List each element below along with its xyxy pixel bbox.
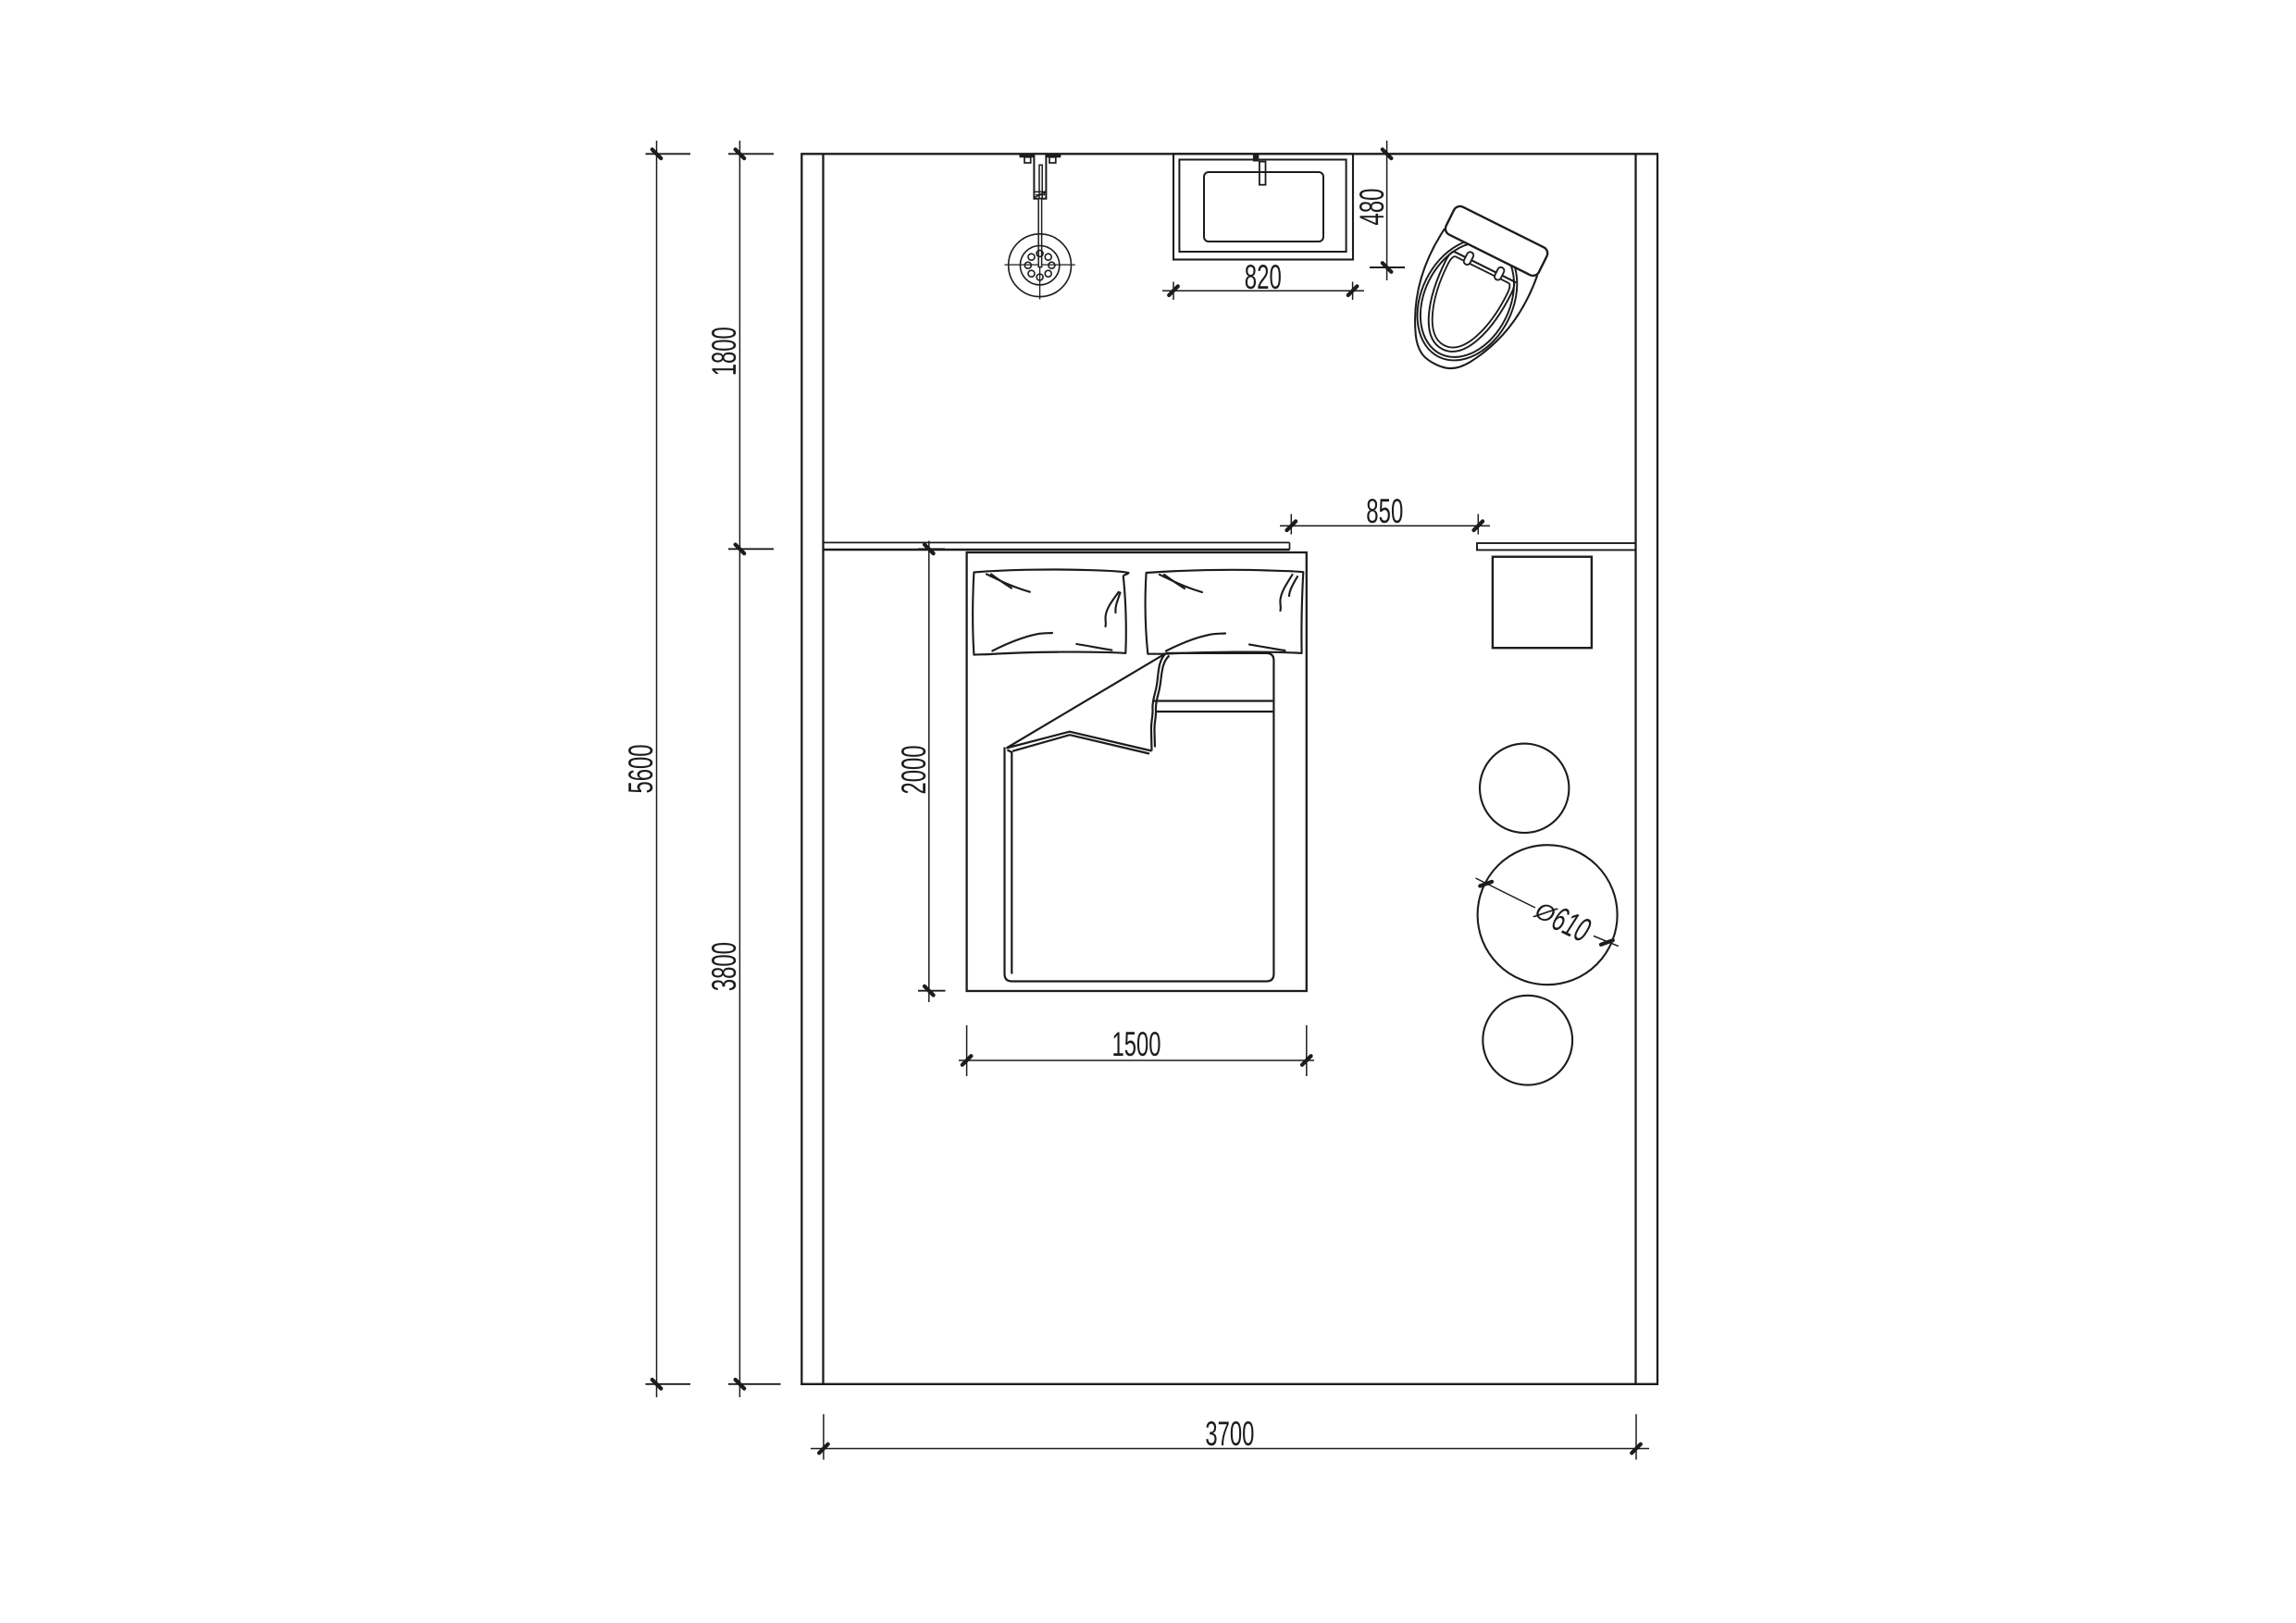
svg-text:820: 820: [1245, 258, 1282, 296]
svg-text:3800: 3800: [705, 942, 743, 991]
svg-text:1500: 1500: [1112, 1025, 1161, 1063]
svg-text:480: 480: [1353, 189, 1391, 226]
svg-text:3700: 3700: [1205, 1415, 1254, 1453]
svg-text:850: 850: [1366, 492, 1403, 530]
svg-text:5600: 5600: [622, 745, 660, 794]
svg-text:2000: 2000: [895, 746, 933, 795]
svg-text:1800: 1800: [705, 327, 743, 376]
